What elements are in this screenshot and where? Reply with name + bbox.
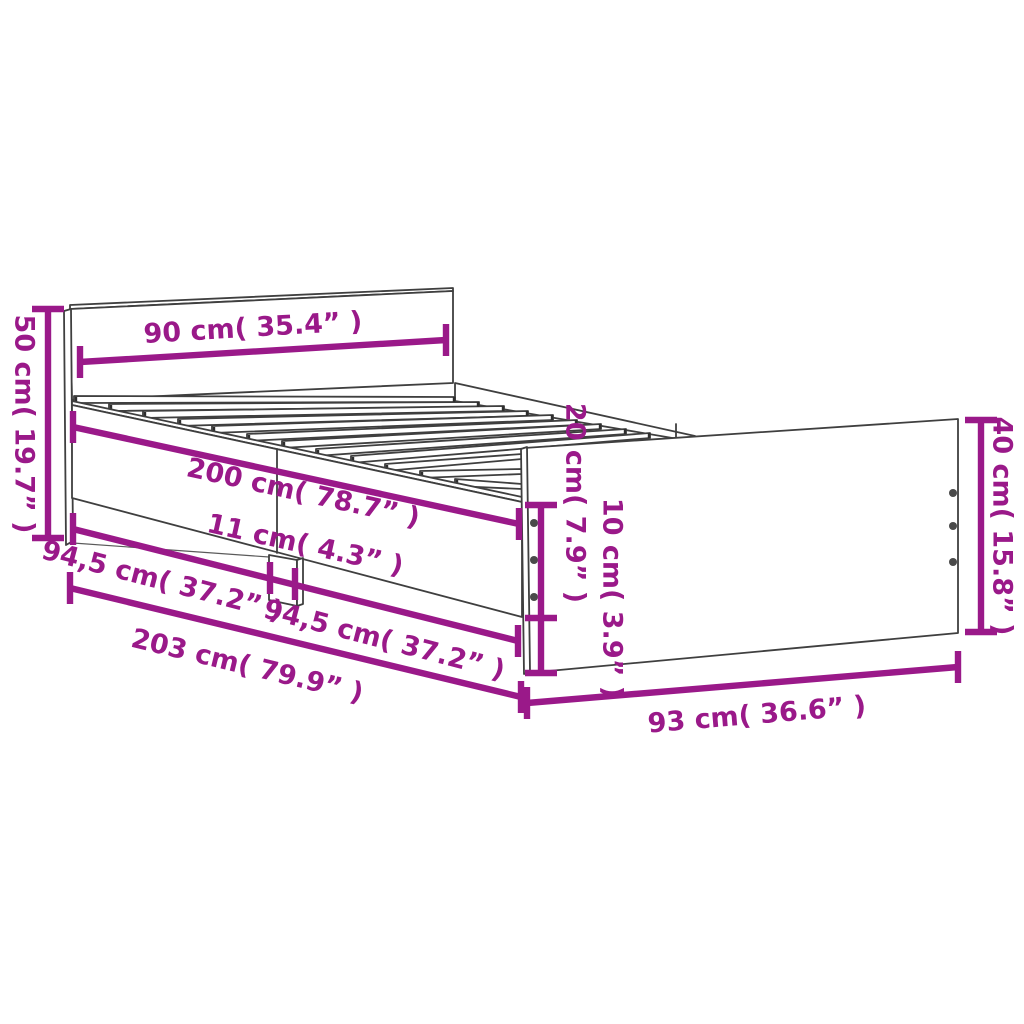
screw-dot [949,522,957,530]
slat [420,469,522,478]
dim-label-clearance: 10 cm( 3.9” ) [597,498,628,698]
dim-headboard-height: 50 cm( 19.7” ) [9,309,65,538]
dim-label-rail-height: 20 cm( 7.9” ) [560,403,591,603]
dim-label-footboard-height: 40 cm( 15.8” ) [987,417,1018,636]
screw-dot [949,489,957,497]
screw-dot [530,519,538,527]
dim-label-footboard-width: 93 cm( 36.6” ) [647,690,868,739]
screw-dot [530,593,538,601]
screw-dot [530,556,538,564]
bed-frame-diagram: 90 cm( 35.4” ) 50 cm( 19.7” ) 200 cm( 78… [0,0,1024,1024]
dim-label-headboard-height: 50 cm( 19.7” ) [9,315,40,534]
dim-footboard-height: 40 cm( 15.8” ) [965,417,1018,636]
diagram-canvas: 90 cm( 35.4” ) 50 cm( 19.7” ) 200 cm( 78… [0,0,1024,1024]
screw-dot [949,558,957,566]
